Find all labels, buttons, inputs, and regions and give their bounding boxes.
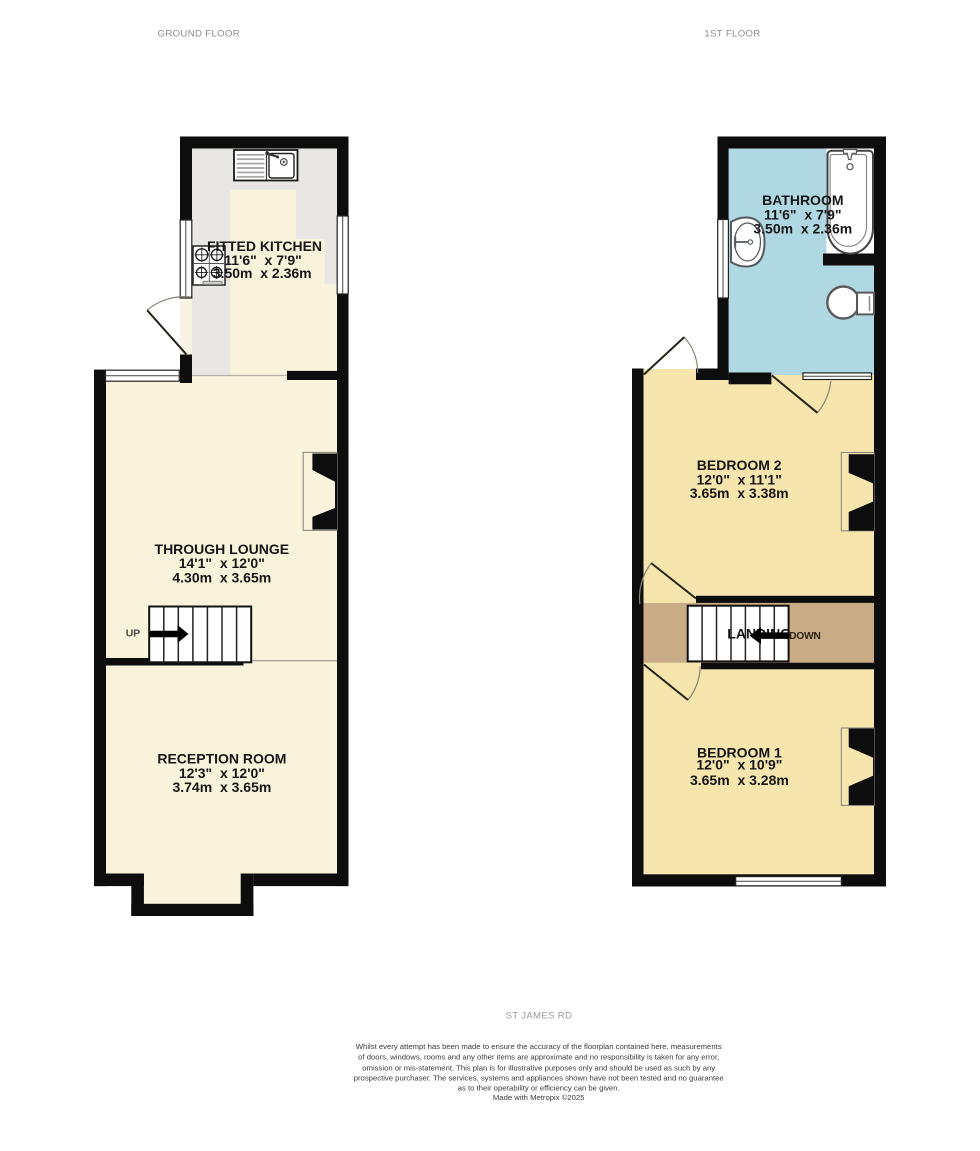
svg-text:4.30m x 3.65m: 4.30m x 3.65m xyxy=(172,570,271,586)
svg-text:1ST FLOOR: 1ST FLOOR xyxy=(704,28,760,39)
svg-text:3.65m x 3.38m: 3.65m x 3.38m xyxy=(690,485,789,501)
svg-text:12'0" x 10'9": 12'0" x 10'9" xyxy=(696,757,782,773)
svg-text:omission or mis-statement. Thi: omission or mis-statement. This plan is … xyxy=(362,1063,715,1072)
svg-text:prospective purchaser. The ser: prospective purchaser. The services, sys… xyxy=(354,1074,724,1083)
svg-text:Made with Metropix ©2025: Made with Metropix ©2025 xyxy=(493,1093,585,1102)
svg-text:3.50m x 2.36m: 3.50m x 2.36m xyxy=(213,265,312,281)
svg-text:3.74m x 3.65m: 3.74m x 3.65m xyxy=(172,779,271,795)
svg-text:Whilst every attempt has been: Whilst every attempt has been made to en… xyxy=(356,1042,722,1051)
svg-text:3.65m x 3.28m: 3.65m x 3.28m xyxy=(690,772,789,788)
svg-text:ST JAMES RD: ST JAMES RD xyxy=(506,1010,573,1021)
svg-text:BATHROOM: BATHROOM xyxy=(762,192,843,208)
svg-text:GROUND FLOOR: GROUND FLOOR xyxy=(158,28,241,39)
svg-text:3.50m x 2.36m: 3.50m x 2.36m xyxy=(753,220,852,236)
svg-text:DOWN: DOWN xyxy=(789,631,820,642)
svg-text:14'1" x 12'0": 14'1" x 12'0" xyxy=(179,555,265,571)
svg-text:of doors, windows, rooms and a: of doors, windows, rooms and any other i… xyxy=(358,1053,719,1062)
svg-text:UP: UP xyxy=(126,628,140,640)
svg-text:as to their operability or eff: as to their operability or efficiency ca… xyxy=(458,1083,620,1092)
